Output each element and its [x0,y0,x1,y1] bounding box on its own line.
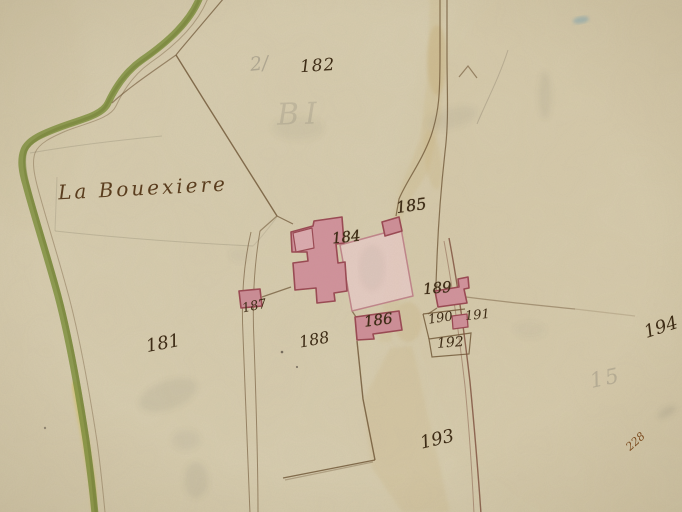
parcel-label-186: 186 [363,311,393,329]
pencil-annotation-2: 2/ [249,54,269,75]
pencil-annotation-BI: BI [276,99,323,131]
parcel-label-185: 185 [395,196,427,216]
parcel-label-189: 189 [422,280,452,297]
cadastral-map: La Bouexiere 182 2/ BI 185 184 187 186 1… [0,0,682,512]
parcel-label-192: 192 [437,335,465,351]
parcel-label-182: 182 [299,57,336,76]
map-drawing [0,0,682,512]
paper-grain-overlay [0,0,682,512]
parcel-label-190: 190 [427,310,453,326]
parcel-label-184: 184 [331,229,361,247]
parcel-label-191: 191 [464,308,490,323]
